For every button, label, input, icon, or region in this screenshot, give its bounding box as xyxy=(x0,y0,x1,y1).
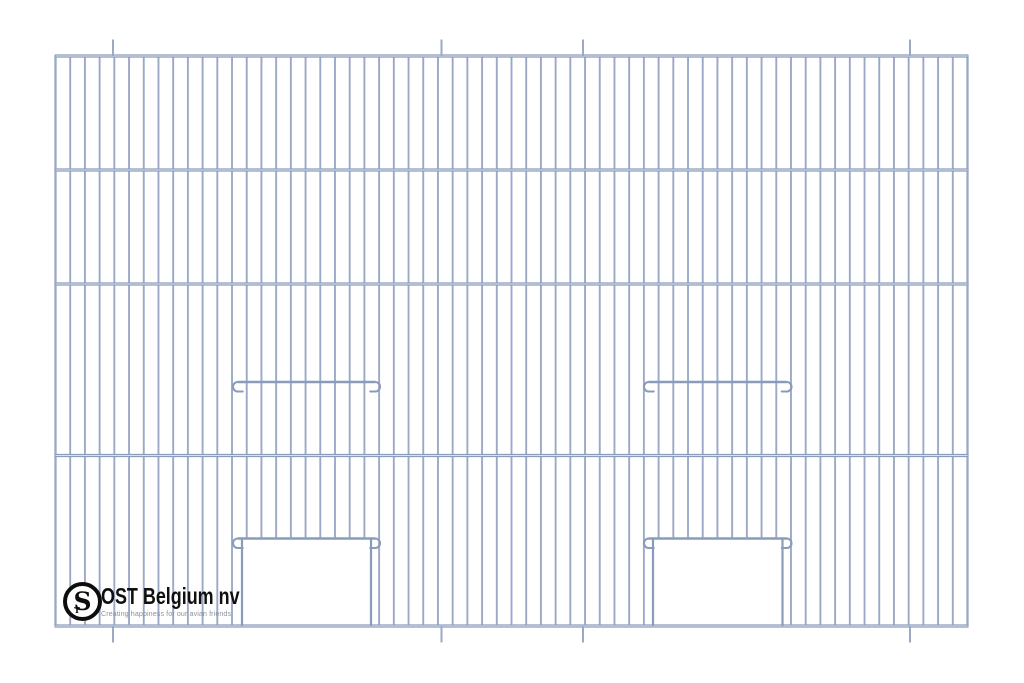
page: S T OST Belgium nv Creating happiness fo… xyxy=(0,0,1024,683)
logo-monogram-letter: S xyxy=(67,586,98,617)
ost-logo: S T OST Belgium nv Creating happiness fo… xyxy=(63,582,279,621)
cage-front-panel-drawing xyxy=(0,0,1024,683)
company-tagline: Creating happiness for our avian friends xyxy=(101,610,270,618)
logo-text: OST Belgium nv Creating happiness for ou… xyxy=(101,582,279,618)
logo-monogram-small-letter: T xyxy=(74,606,80,614)
vertical-wires xyxy=(56,56,968,626)
door-header-bar xyxy=(644,539,792,549)
company-name: OST Belgium nv xyxy=(101,585,240,608)
door-header-bar xyxy=(233,539,380,549)
ost-logo-mark: S T xyxy=(63,582,102,621)
